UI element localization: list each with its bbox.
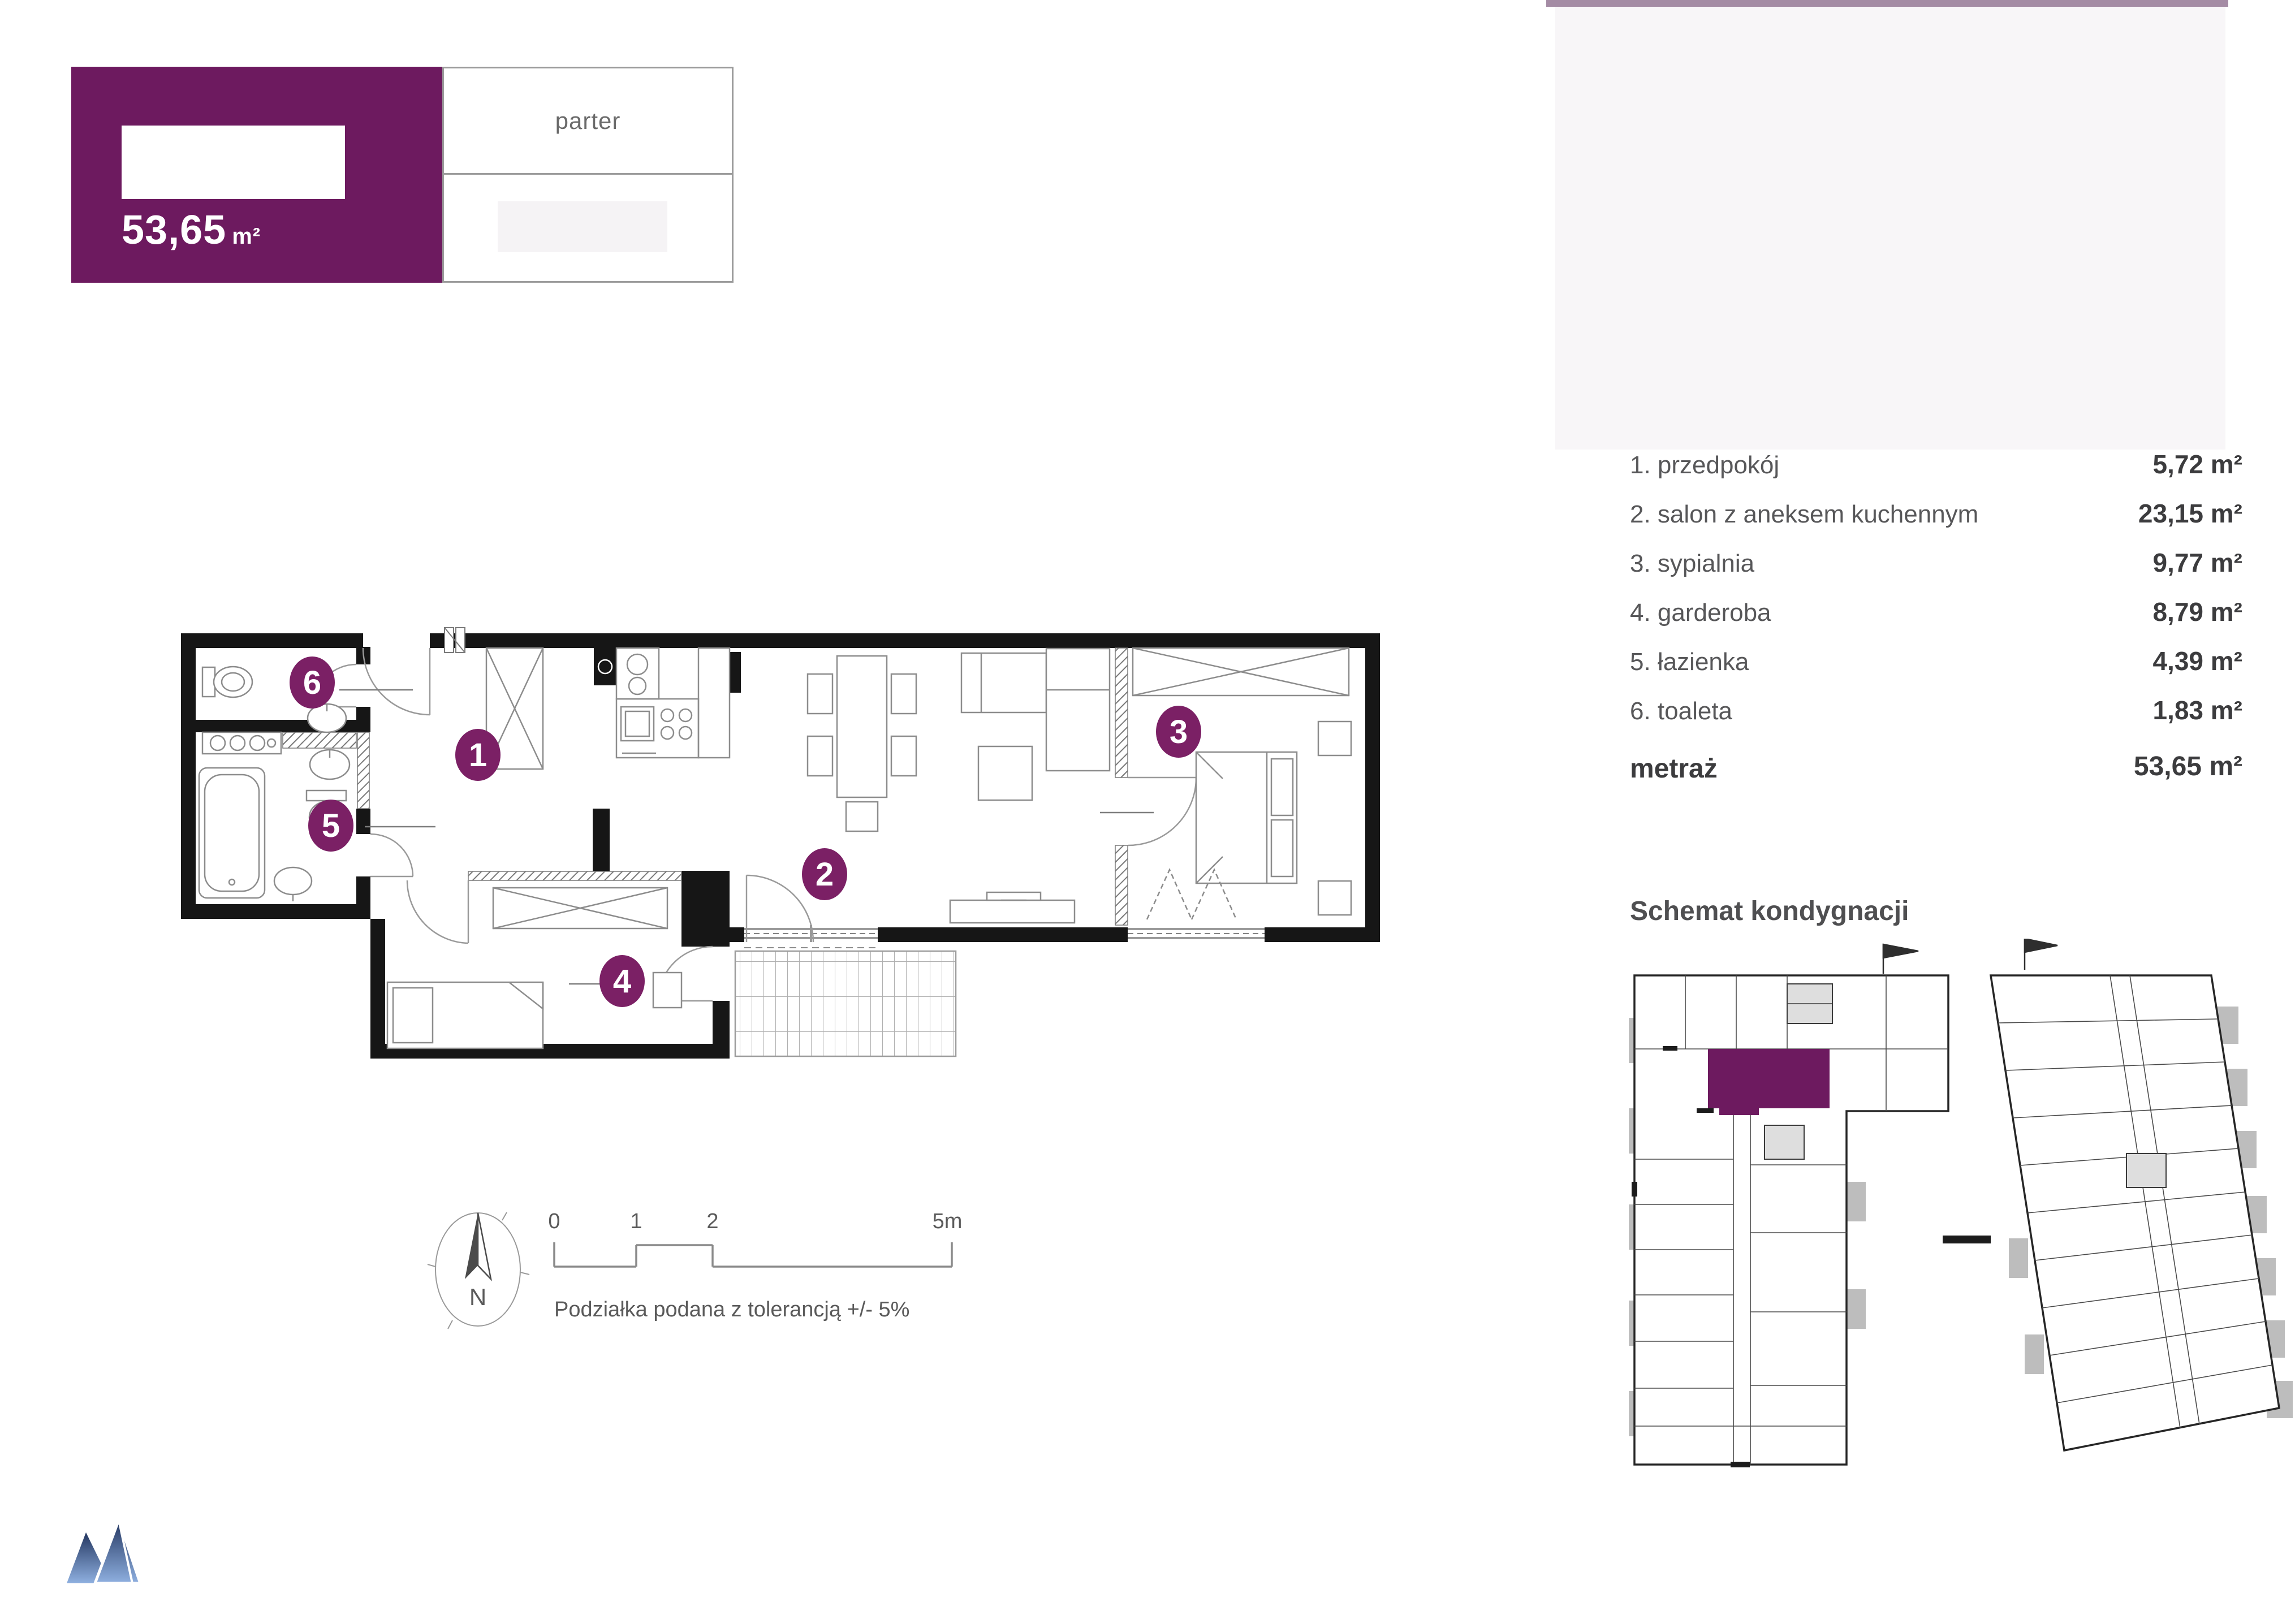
badge-number: 4 [613, 963, 631, 1000]
developer-logo-icon [62, 1515, 147, 1589]
room-badge-2: 2 [802, 848, 847, 900]
room-row: 4. garderoba 8,79 m² [1630, 589, 2242, 638]
scale-tolerance-note: Podziałka podana z tolerancją +/- 5% [554, 1298, 909, 1321]
room-label: 2. salon z aneksem kuchennym [1630, 500, 1978, 529]
area-unit: m² [232, 224, 261, 249]
apartment-offer-sheet: 53,65m² parter 1. przedpokój 5,72 m² 2. … [0, 0, 2295, 1624]
building-schematic [1629, 939, 2295, 1482]
area-value: 53,65 [122, 208, 226, 253]
floor-table: parter [442, 67, 734, 283]
scale-tick-1: 1 [630, 1210, 642, 1233]
room-area: 9,77 m² [2152, 547, 2242, 578]
badge-number: 3 [1170, 714, 1188, 750]
compass-icon: N [428, 1212, 529, 1329]
room-label: 3. sypialnia [1630, 550, 1754, 578]
badge-number: 5 [322, 807, 340, 844]
redacted-unit-name [122, 126, 345, 199]
floor-plan: 1 2 3 4 5 6 [170, 611, 1414, 1120]
room-area: 5,72 m² [2152, 449, 2242, 480]
total-row: metraż 53,65 m² [1630, 741, 2242, 797]
total-label: metraż [1630, 753, 1718, 784]
room-row: 3. sypialnia 9,77 m² [1630, 539, 2242, 589]
redacted-cell [498, 201, 667, 252]
badge-number: 2 [816, 856, 834, 893]
small-cabinet-icon [653, 973, 681, 1008]
bedroom-wardrobe-icon [1133, 648, 1349, 696]
balcony-door-leaf [747, 875, 813, 942]
bedroom-door [1128, 778, 1196, 845]
room-label: 1. przedpokój [1630, 451, 1779, 480]
scale-tick-0: 0 [548, 1210, 560, 1233]
room-badge-3: 3 [1156, 706, 1201, 758]
scale-tick-2: 2 [706, 1210, 718, 1233]
bathroom-door [370, 834, 413, 876]
room-list: 1. przedpokój 5,72 m² 2. salon z aneksem… [1630, 441, 2242, 797]
bathtub-icon [199, 768, 265, 898]
room-row: 1. przedpokój 5,72 m² [1630, 441, 2242, 490]
floor-name: parter [444, 68, 732, 175]
room-label: 5. łazienka [1630, 648, 1749, 676]
compass-north-label: N [469, 1284, 486, 1310]
floor-schematic-title: Schemat kondygnacji [1630, 896, 1909, 927]
apartment-area: 53,65m² [122, 207, 261, 253]
compass-and-scale: N 0 1 2 5m Podziałka podana z tolerancją… [419, 1182, 984, 1351]
bathroom-sink2-icon [274, 867, 312, 901]
bedroom-window [1128, 929, 1265, 938]
top-right-light-panel [1555, 7, 2225, 450]
room-area: 1,83 m² [2152, 695, 2242, 725]
room-badge-5: 5 [308, 800, 353, 852]
area-card: 53,65m² [71, 67, 442, 283]
section-marks [1883, 939, 2057, 974]
room-area: 23,15 m² [2138, 498, 2242, 529]
left-wing [1629, 975, 1948, 1467]
badge-number: 6 [303, 664, 321, 701]
room-row: 2. salon z aneksem kuchennym 23,15 m² [1630, 490, 2242, 539]
room-row: 6. toaleta 1,83 m² [1630, 687, 2242, 736]
wardrobe-room-door [407, 880, 468, 943]
room-area: 4,39 m² [2152, 646, 2242, 676]
coffee-table-icon [978, 746, 1032, 800]
terrace [735, 948, 956, 1056]
scale-bar: 0 1 2 5m Podziałka podana z tolerancją +… [548, 1210, 962, 1321]
highlighted-unit [1708, 1049, 1830, 1115]
room-label: 4. garderoba [1630, 599, 1771, 627]
double-bed-icon [1196, 722, 1351, 915]
room-badge-6: 6 [290, 656, 335, 709]
room-badge-1: 1 [455, 729, 501, 781]
entrance-door [363, 648, 430, 715]
total-area: 53,65 m² [2134, 751, 2242, 782]
room-badge-4: 4 [599, 955, 645, 1007]
single-bed-icon [387, 982, 543, 1048]
vent-shaft-icon [445, 628, 465, 653]
room-area: 8,79 m² [2152, 597, 2242, 627]
dining-table-icon [808, 656, 916, 831]
laundry-cabinet-icon [202, 732, 281, 754]
wardrobe-icon [493, 888, 667, 928]
kitchen-block [598, 648, 730, 758]
top-mauve-bar [1546, 0, 2228, 7]
right-wing [1943, 975, 2293, 1450]
room-row: 5. łazienka 4,39 m² [1630, 638, 2242, 687]
badge-number: 1 [469, 737, 487, 774]
toilet-wc-icon [202, 667, 252, 697]
room-label: 6. toaleta [1630, 697, 1732, 725]
scale-tick-5m: 5m [933, 1210, 963, 1233]
courtyard-entrance-mark [1943, 1236, 1991, 1243]
bathroom-sink-icon [310, 750, 350, 779]
tv-bench-icon [950, 892, 1075, 923]
